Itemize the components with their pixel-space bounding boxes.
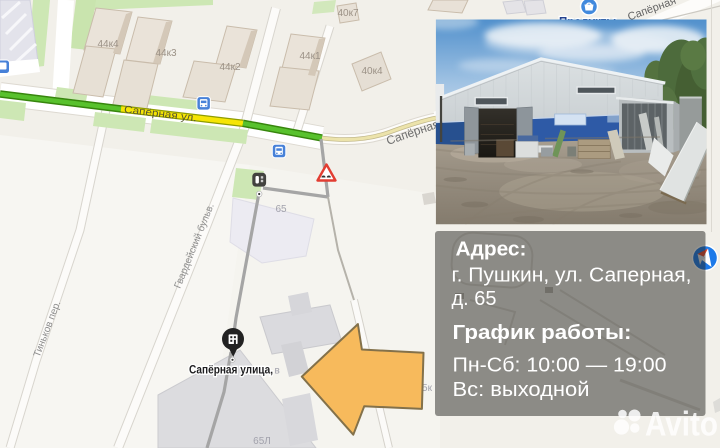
svg-text:40к7: 40к7 bbox=[337, 8, 358, 19]
svg-text:65: 65 bbox=[275, 204, 287, 215]
svg-text:44к2: 44к2 bbox=[219, 62, 240, 73]
svg-text:40к4: 40к4 bbox=[361, 66, 382, 77]
svg-text:44к4: 44к4 bbox=[97, 39, 118, 50]
svg-text:в: в bbox=[275, 366, 280, 377]
svg-text:65Л: 65Л bbox=[253, 436, 271, 447]
svg-text:5к: 5к bbox=[422, 383, 433, 394]
svg-text:д. 65: д. 65 bbox=[452, 287, 497, 310]
svg-text:Avito: Avito bbox=[645, 406, 718, 444]
svg-text:44к3: 44к3 bbox=[155, 48, 176, 59]
svg-text:44к1: 44к1 bbox=[299, 51, 320, 62]
svg-text:Адрес:: Адрес: bbox=[456, 238, 527, 261]
svg-text:Вс: выходной: Вс: выходной bbox=[453, 378, 590, 401]
svg-text:Пн-Сб: 10:00 — 19:00: Пн-Сб: 10:00 — 19:00 bbox=[453, 354, 667, 377]
svg-text:Сапёрная улица,: Сапёрная улица, bbox=[189, 363, 273, 377]
svg-text:г. Пушкин, ул. Саперная,: г. Пушкин, ул. Саперная, bbox=[452, 264, 692, 287]
svg-text:График работы:: График работы: bbox=[453, 321, 632, 344]
